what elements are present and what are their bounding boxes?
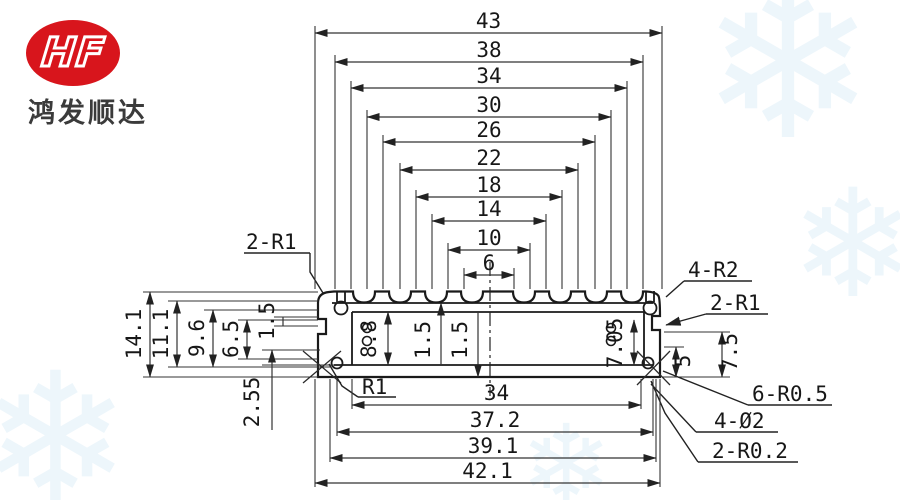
callout-leader	[310, 253, 323, 293]
dim-top-34: 34	[476, 64, 501, 88]
drawing-sheet: ❄ ❄ ❄ ❄ HF 鸿发顺达	[0, 0, 900, 500]
company-name: 鸿发顺达	[28, 91, 148, 130]
callout-right-lower: 6-R0.5	[752, 382, 828, 406]
dim-top-38: 38	[476, 38, 501, 62]
dim-left-11.1: 11.1	[149, 309, 173, 360]
dim-top-10: 10	[476, 226, 501, 250]
dim-left-6.5: 6.5	[219, 320, 243, 358]
screw-boss-stem-left	[337, 291, 345, 302]
dim-left-1.5: 1.5	[255, 302, 279, 340]
callouts: 2-R1 4-R2 2-R1 6-R0.5 4-Ø2 2-R0.2 R1	[244, 230, 832, 463]
inner-walls	[352, 312, 644, 365]
dim-inner-7.05: 7.05	[603, 318, 627, 369]
dim-top-14: 14	[476, 197, 501, 221]
dim-left-2.55: 2.55	[240, 377, 264, 428]
dim-bottom-37.2: 37.2	[470, 408, 521, 432]
dim-top-22: 22	[476, 146, 501, 170]
callout-bottom-left: R1	[362, 375, 387, 399]
screw-boss-bottom-left	[332, 358, 343, 369]
callout-bottom-right: 2-R0.2	[712, 439, 788, 463]
callout-leader	[651, 381, 698, 462]
callout-leader	[666, 314, 706, 325]
hf-logo-text: HF	[39, 30, 107, 76]
callout-top-left: 2-R1	[246, 230, 297, 254]
dim-top-18: 18	[476, 173, 501, 197]
dim-bottom-34: 34	[484, 381, 509, 405]
dim-inner-1.5: 1.5	[448, 321, 472, 359]
dim-inner-1.5: 1.5	[411, 321, 435, 359]
dim-right-7.5: 7.5	[718, 333, 742, 371]
dim-top-43: 43	[476, 9, 501, 33]
dim-left-9.6: 9.6	[185, 319, 209, 357]
dimension-lines: 43383430262218141063437.239.142.114.111.…	[122, 9, 742, 487]
dim-bottom-42.1: 42.1	[462, 459, 513, 483]
dim-top-30: 30	[476, 93, 501, 117]
company-logo: HF 鸿发顺达	[26, 20, 148, 130]
hf-logo-ellipse: HF	[26, 20, 120, 86]
callout-top-right: 4-R2	[688, 258, 739, 282]
dim-left-14.1: 14.1	[122, 309, 146, 360]
callout-right-upper: 2-R1	[710, 291, 761, 315]
dim-bottom-39.1: 39.1	[468, 434, 519, 458]
dim-right-5: 5	[671, 355, 695, 368]
callout-leader	[666, 281, 684, 297]
dim-top-6: 6	[483, 251, 496, 275]
callout-holes: 4-Ø2	[714, 409, 765, 433]
dim-top-26: 26	[476, 118, 501, 142]
dim-inner-8.8: 8.8	[357, 320, 381, 358]
callout-leader	[329, 364, 358, 397]
